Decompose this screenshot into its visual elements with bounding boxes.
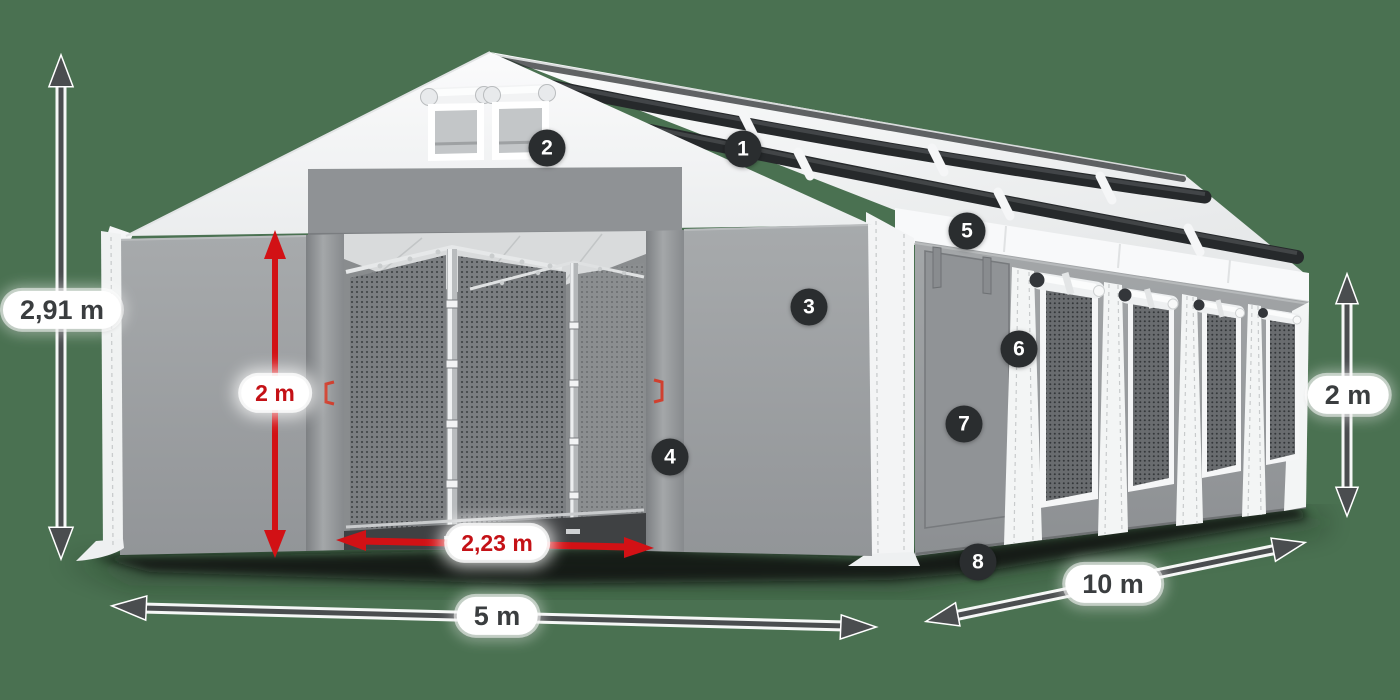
product-diagram: 2,91 m 5 m 10 m 2 m 2 m 2,23 m 1 2 3 4 5… xyxy=(0,0,1400,700)
callout-8-ground-skirt: 8 xyxy=(960,544,997,581)
dimension-total-height: 2,91 m xyxy=(3,291,121,329)
callout-3-front-wall: 3 xyxy=(791,289,828,326)
callout-4-entrance: 4 xyxy=(652,439,689,476)
callout-6-side-window: 6 xyxy=(1001,331,1038,368)
callout-7-side-door: 7 xyxy=(946,406,983,443)
callout-2-gable-window: 2 xyxy=(529,130,566,167)
callout-5-eave: 5 xyxy=(949,213,986,250)
door-header xyxy=(308,167,682,236)
side-window-1 xyxy=(1030,273,1105,509)
dimension-entrance-width: 2,23 m xyxy=(447,526,547,560)
dimension-width: 5 m xyxy=(457,597,538,635)
side-door xyxy=(925,247,1009,528)
callout-1-roof-mesh: 1 xyxy=(725,131,762,168)
dimension-length: 10 m xyxy=(1065,565,1161,603)
front-wall-right xyxy=(684,224,872,556)
dimension-entrance-height: 2 m xyxy=(241,376,309,410)
doorway-interior xyxy=(344,231,646,550)
dimension-side-height: 2 m xyxy=(1308,376,1389,414)
tent-illustration xyxy=(0,0,1400,700)
